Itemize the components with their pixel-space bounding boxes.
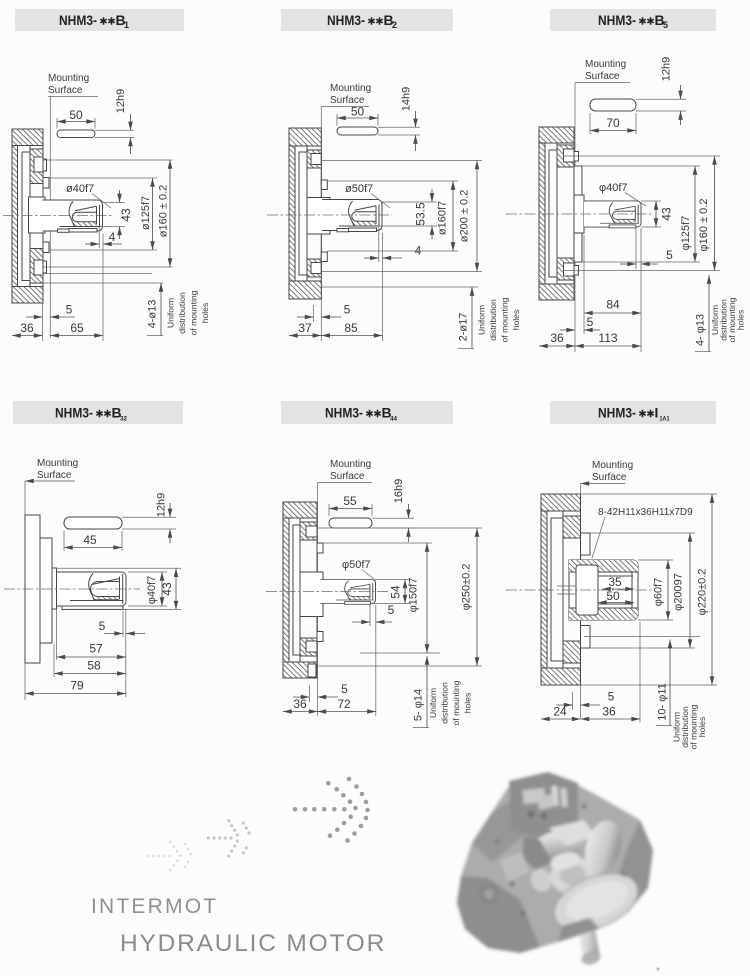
svg-text:Uniform: Uniform (477, 305, 487, 335)
svg-text:50: 50 (606, 589, 620, 603)
svg-text:36: 36 (550, 331, 564, 345)
svg-text:84: 84 (606, 298, 620, 312)
svg-text:35: 35 (608, 575, 622, 589)
svg-text:5: 5 (344, 303, 351, 317)
svg-text:36: 36 (602, 705, 616, 719)
svg-text:70: 70 (606, 116, 620, 130)
svg-text:ø160f7: ø160f7 (437, 201, 449, 235)
svg-text:44: 44 (390, 416, 397, 423)
svg-text:φ125f7: φ125f7 (680, 216, 692, 251)
svg-text:holes: holes (511, 310, 521, 331)
svg-text:holes: holes (736, 310, 746, 331)
svg-text:holes: holes (697, 717, 707, 738)
svg-text:distribution: distribution (488, 299, 498, 341)
svg-text:of mounting: of mounting (500, 297, 510, 342)
svg-text:ø40f7: ø40f7 (66, 183, 94, 195)
svg-text:φ60f7: φ60f7 (653, 578, 665, 607)
svg-text:37: 37 (298, 321, 312, 335)
svg-text:ø125f7: ø125f7 (140, 196, 152, 230)
svg-text:5: 5 (341, 682, 348, 696)
svg-text:Mounting: Mounting (330, 459, 371, 470)
svg-text:32: 32 (120, 416, 127, 423)
svg-text:5: 5 (388, 603, 395, 617)
svg-text:5- φ14: 5- φ14 (413, 689, 425, 721)
svg-text:36: 36 (20, 321, 34, 335)
svg-text:5: 5 (99, 619, 106, 633)
svg-text:4: 4 (415, 244, 422, 258)
svg-text:NHM3-: NHM3- (55, 405, 93, 421)
svg-text:58: 58 (87, 659, 101, 673)
svg-text:2-ø17: 2-ø17 (458, 313, 470, 342)
svg-text:43: 43 (119, 208, 133, 222)
svg-text:55: 55 (343, 494, 357, 508)
svg-text:10- φ11: 10- φ11 (657, 683, 669, 721)
svg-text:4-ø13: 4-ø13 (147, 300, 159, 329)
svg-text:45: 45 (83, 533, 97, 547)
svg-text:5: 5 (663, 20, 668, 30)
svg-text:4- φ13: 4- φ13 (695, 314, 707, 346)
svg-text:24: 24 (553, 705, 567, 719)
svg-text:50: 50 (69, 108, 83, 122)
svg-text:79: 79 (70, 679, 84, 693)
svg-text:4: 4 (109, 230, 116, 244)
svg-text:5: 5 (608, 690, 615, 704)
svg-text:φ220±0.2: φ220±0.2 (697, 569, 709, 616)
svg-text:of mounting: of mounting (189, 290, 199, 335)
svg-text:5: 5 (66, 303, 73, 317)
svg-text:Surface: Surface (330, 471, 365, 482)
svg-text:φ160 ± 0.2: φ160 ± 0.2 (698, 199, 710, 252)
svg-text:φ40f7: φ40f7 (599, 182, 628, 194)
svg-text:φ250±0.2: φ250±0.2 (461, 564, 473, 611)
svg-text:16h9: 16h9 (393, 479, 405, 503)
svg-text:12h9: 12h9 (115, 89, 127, 113)
svg-text:I: I (655, 405, 659, 421)
svg-text:HYDRAULIC MOTOR: HYDRAULIC MOTOR (120, 930, 386, 957)
svg-text:8-42H11x36H11x7D9: 8-42H11x36H11x7D9 (598, 507, 693, 518)
svg-text:INTERMOT: INTERMOT (91, 895, 218, 918)
svg-text:φ150f7: φ150f7 (408, 578, 420, 613)
svg-text:85: 85 (344, 321, 358, 335)
svg-text:distribution: distribution (440, 682, 450, 724)
svg-text:65: 65 (70, 321, 84, 335)
svg-text:Mounting: Mounting (48, 73, 89, 84)
svg-text:Mounting: Mounting (37, 458, 78, 469)
svg-text:1A1: 1A1 (660, 417, 671, 423)
svg-text:43: 43 (160, 582, 174, 596)
svg-text:Surface: Surface (48, 85, 83, 96)
svg-text:Uniform: Uniform (428, 688, 438, 718)
svg-text:NHM3-: NHM3- (59, 12, 97, 28)
svg-text:113: 113 (598, 331, 617, 345)
svg-text:ø50f7: ø50f7 (345, 183, 373, 195)
svg-text:Surface: Surface (37, 470, 72, 481)
svg-text:57: 57 (89, 642, 103, 656)
svg-text:ø200 ± 0.2: ø200 ± 0.2 (459, 190, 471, 243)
svg-text:36: 36 (293, 697, 307, 711)
svg-text:of mounting: of mounting (451, 680, 461, 725)
svg-text:Surface: Surface (585, 71, 620, 82)
svg-text:54: 54 (389, 585, 403, 599)
svg-text:Mounting: Mounting (585, 59, 626, 70)
svg-text:Surface: Surface (592, 472, 627, 483)
svg-text:holes: holes (200, 303, 210, 324)
svg-text:φ50f7: φ50f7 (342, 559, 371, 571)
svg-text:2: 2 (392, 20, 397, 30)
svg-text:Uniform: Uniform (166, 298, 176, 328)
svg-text:50: 50 (351, 105, 365, 119)
svg-text:NHM3-: NHM3- (598, 405, 636, 421)
svg-text:NHM3-: NHM3- (598, 12, 636, 28)
svg-text:43: 43 (660, 207, 674, 221)
svg-text:53.5: 53.5 (414, 202, 428, 226)
svg-text:12h9: 12h9 (661, 57, 673, 81)
svg-text:5: 5 (666, 248, 673, 262)
svg-text:φ40f7: φ40f7 (146, 576, 158, 605)
svg-text:12h9: 12h9 (156, 493, 168, 517)
svg-text:NHM3-: NHM3- (327, 12, 365, 28)
svg-text:NHM3-: NHM3- (325, 405, 363, 421)
svg-text:holes: holes (463, 693, 473, 714)
svg-text:5: 5 (587, 315, 594, 329)
svg-text:ø160 ± 0.2: ø160 ± 0.2 (158, 185, 170, 238)
svg-text:distribution: distribution (177, 292, 187, 334)
svg-text:14h9: 14h9 (401, 87, 413, 111)
svg-text:φ20097: φ20097 (673, 573, 685, 611)
svg-text:Mounting: Mounting (330, 83, 371, 94)
svg-text:Mounting: Mounting (592, 460, 633, 471)
svg-text:1: 1 (124, 20, 129, 30)
svg-text:72: 72 (337, 697, 351, 711)
